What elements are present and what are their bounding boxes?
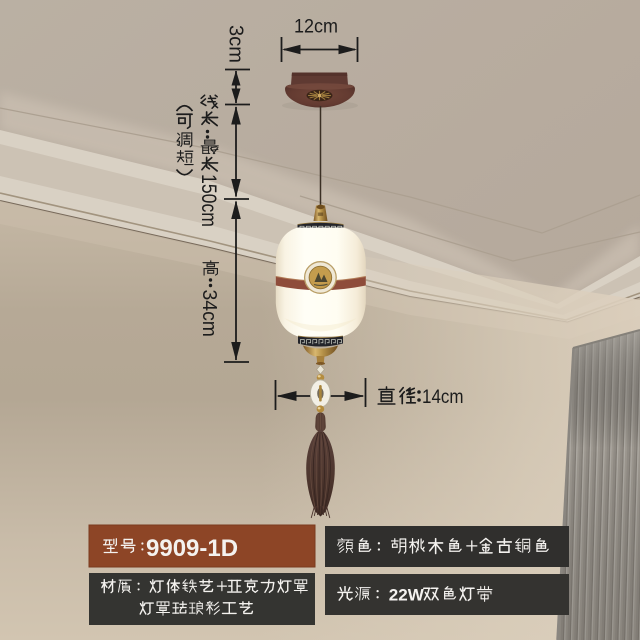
svg-text:3cm: 3cm <box>225 25 247 63</box>
svg-text:22W: 22W <box>389 586 425 605</box>
svg-text:34cm: 34cm <box>198 290 221 338</box>
svg-text:150cm: 150cm <box>197 174 221 227</box>
svg-text:9909-1D: 9909-1D <box>146 535 238 562</box>
svg-text:12cm: 12cm <box>294 16 338 38</box>
svg-text:14cm: 14cm <box>422 386 464 408</box>
